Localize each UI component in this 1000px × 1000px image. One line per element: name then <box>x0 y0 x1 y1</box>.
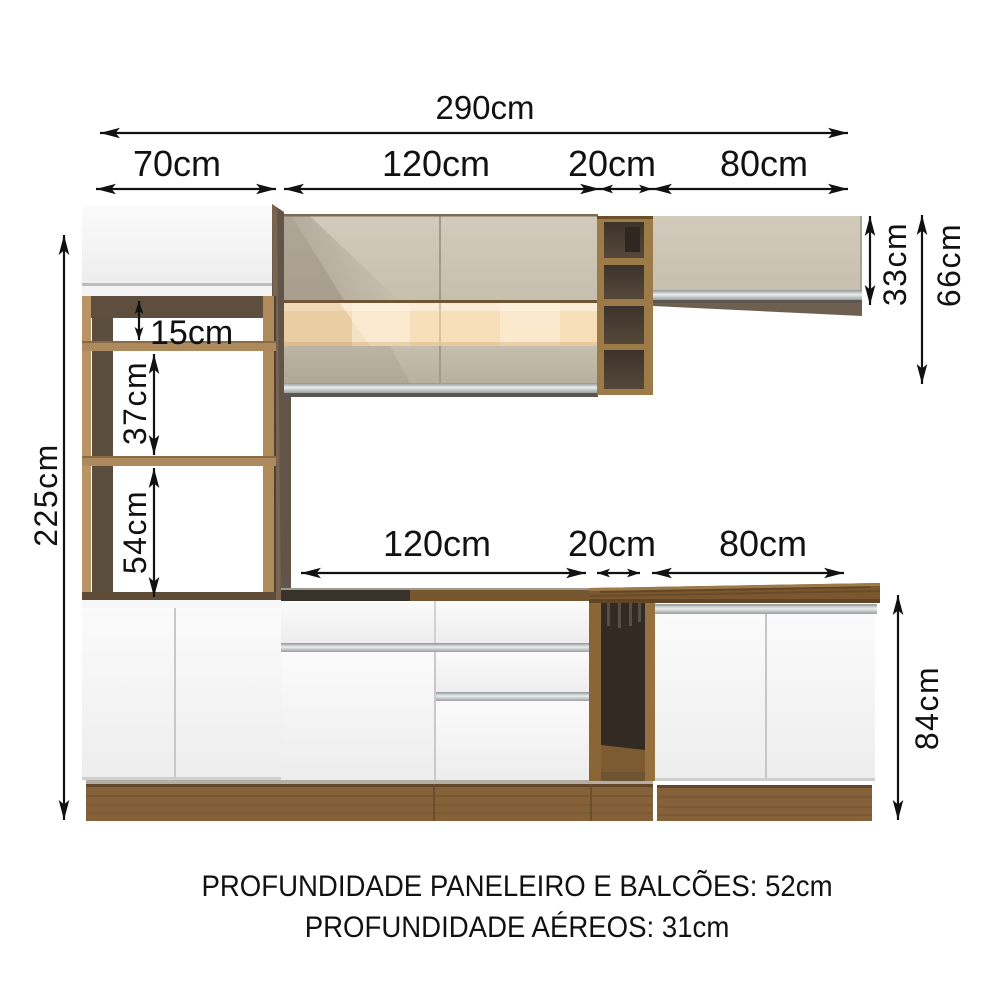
svg-text:15cm: 15cm <box>150 314 233 352</box>
svg-text:290cm: 290cm <box>435 89 534 126</box>
svg-text:225cm: 225cm <box>28 443 64 547</box>
svg-text:120cm: 120cm <box>383 523 491 564</box>
svg-text:80cm: 80cm <box>719 523 807 564</box>
svg-text:PROFUNDIDADE PANELEIRO E BALCÕ: PROFUNDIDADE PANELEIRO E BALCÕES: 52cm <box>201 868 832 903</box>
svg-text:70cm: 70cm <box>133 143 221 184</box>
svg-text:PROFUNDIDADE AÉREOS: 31cm: PROFUNDIDADE AÉREOS: 31cm <box>305 910 730 944</box>
svg-text:66cm: 66cm <box>931 223 967 307</box>
svg-text:54cm: 54cm <box>117 490 153 574</box>
svg-text:20cm: 20cm <box>568 143 656 184</box>
svg-text:80cm: 80cm <box>720 143 808 184</box>
svg-text:20cm: 20cm <box>568 523 656 564</box>
svg-text:37cm: 37cm <box>117 361 153 445</box>
svg-text:33cm: 33cm <box>877 222 913 306</box>
svg-text:84cm: 84cm <box>909 666 945 750</box>
svg-text:120cm: 120cm <box>382 143 490 184</box>
